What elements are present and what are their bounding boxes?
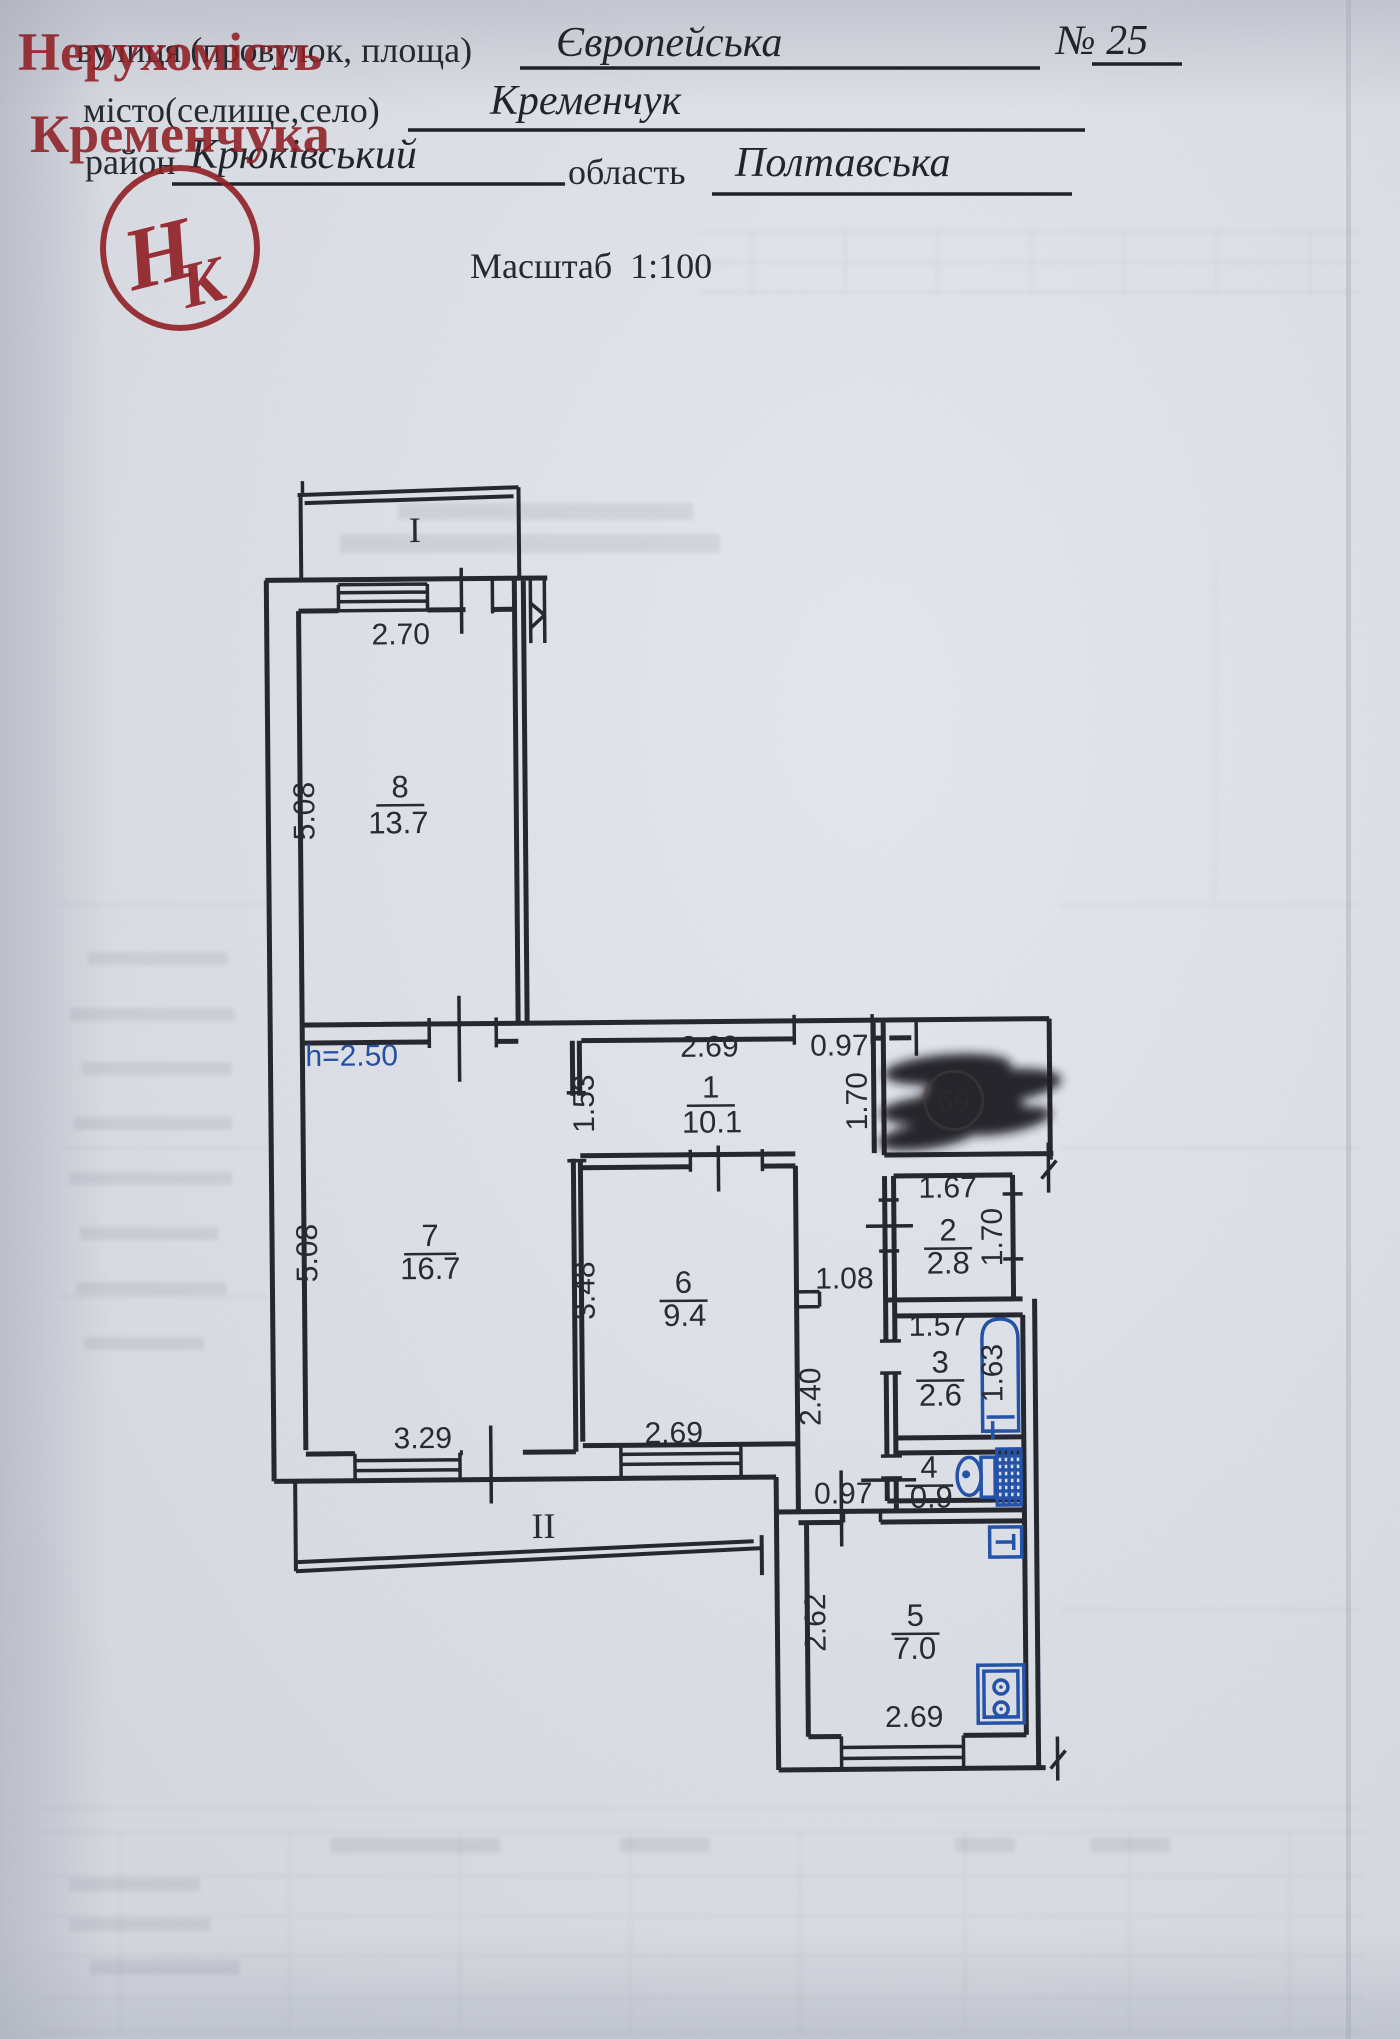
scan-noise-overlay xyxy=(0,0,1400,2039)
document-canvas: вулиця (провулок, площа) Європейська № 2… xyxy=(0,0,1400,2039)
scanned-floor-plan-document: вулиця (провулок, площа) Європейська № 2… xyxy=(0,0,1400,2039)
